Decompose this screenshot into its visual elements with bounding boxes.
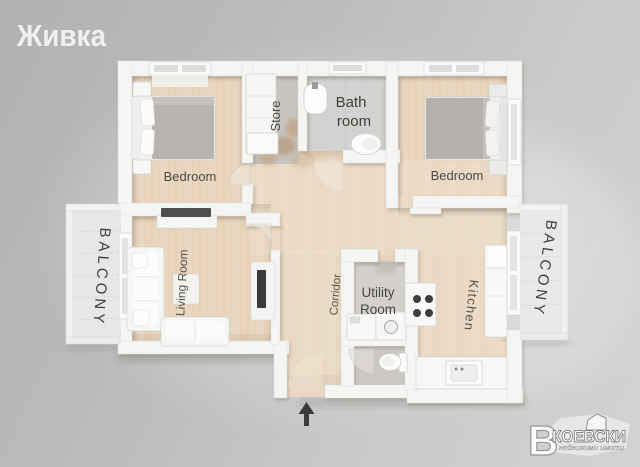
- svg-text:Room: Room: [360, 302, 396, 317]
- svg-text:Store: Store: [268, 100, 283, 131]
- svg-text:недвижими имоти: недвижими имоти: [559, 443, 625, 452]
- svg-text:Bedroom: Bedroom: [164, 169, 217, 184]
- svg-text:room: room: [337, 113, 371, 130]
- svg-text:Utility: Utility: [362, 285, 395, 300]
- svg-text:Живка: Живка: [16, 18, 107, 53]
- svg-text:Bath: Bath: [336, 94, 367, 111]
- svg-text:Bedroom: Bedroom: [431, 168, 484, 183]
